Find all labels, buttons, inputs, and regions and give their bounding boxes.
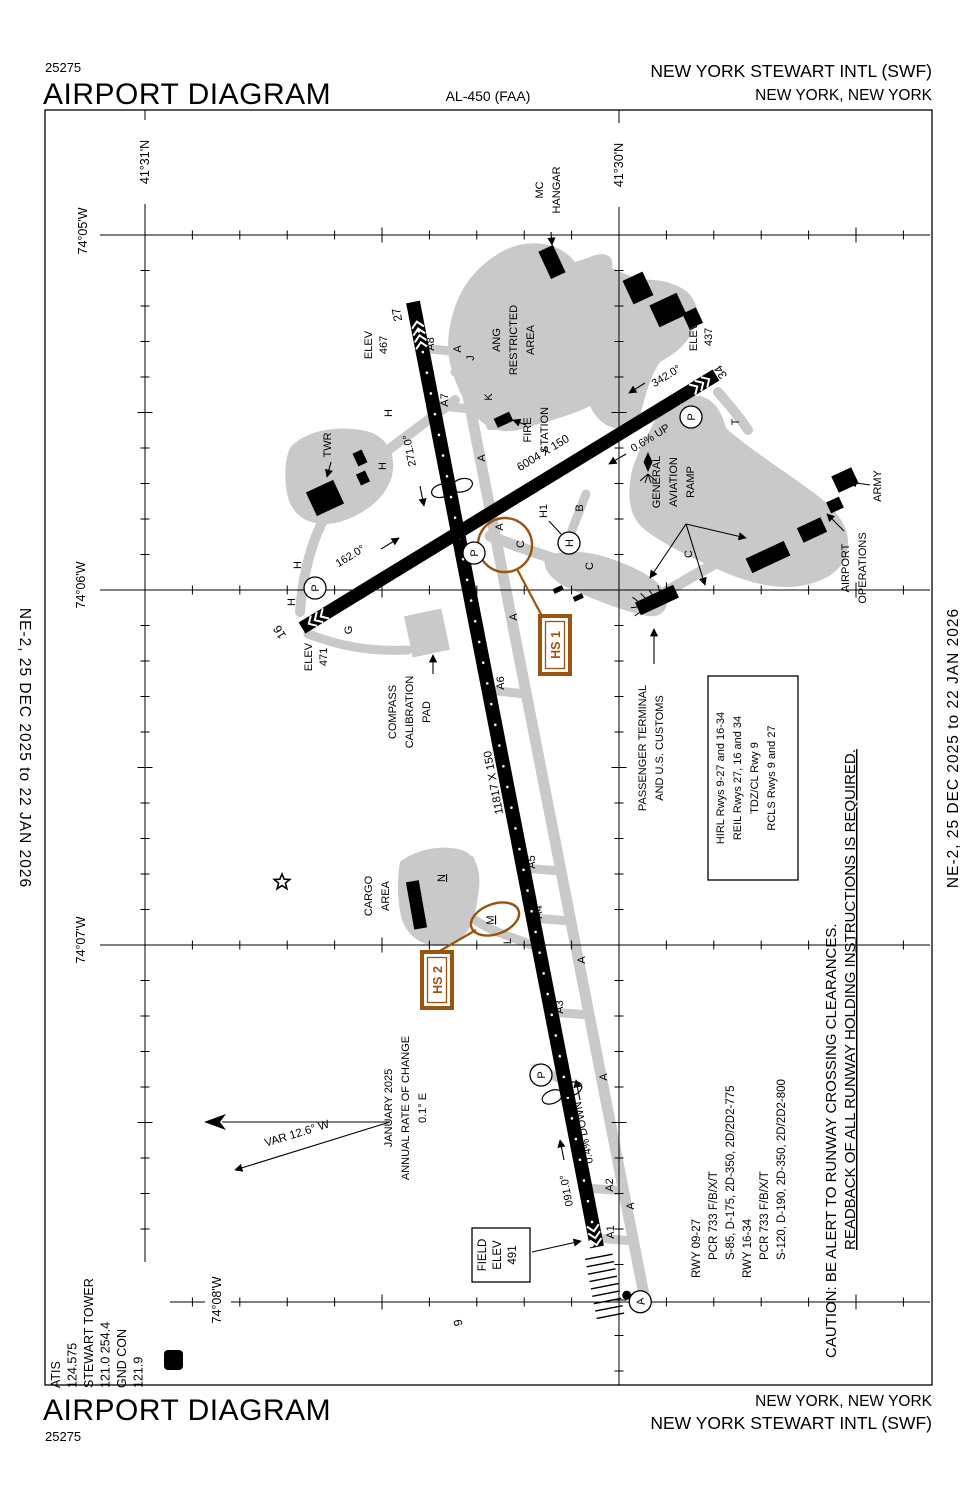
taxiway-label-h1: H1 bbox=[538, 504, 550, 518]
runway-16-heading: 162.0° bbox=[334, 543, 368, 570]
svg-text:STATION: STATION bbox=[539, 407, 551, 453]
taxiway-label-h: H bbox=[377, 462, 389, 470]
effective-dates-left: NE-2, 25 DEC 2025 to 22 JAN 2026 bbox=[16, 608, 33, 888]
hotspot-1-label: HS 1 bbox=[549, 631, 563, 659]
svg-text:READBACK OF ALL RUNWAY HOLDING: READBACK OF ALL RUNWAY HOLDING INSTRUCTI… bbox=[842, 749, 859, 1250]
taxiway-label-a: A bbox=[508, 613, 520, 621]
hold-position-marking bbox=[573, 593, 584, 602]
svg-text:AVIATION: AVIATION bbox=[668, 457, 680, 507]
taxiway-label-a5: A5 bbox=[526, 855, 538, 868]
taxiway-label-b: B bbox=[574, 504, 586, 511]
effective-dates-right: NE-2, 25 DEC 2025 to 22 JAN 2026 bbox=[945, 608, 962, 888]
svg-text:ELEV: ELEV bbox=[688, 322, 700, 351]
svg-text:COMPASS: COMPASS bbox=[387, 685, 399, 739]
svg-text:471: 471 bbox=[318, 648, 330, 666]
svg-text:P: P bbox=[469, 549, 481, 556]
field-elev-position-dot bbox=[588, 1241, 594, 1247]
svg-text:ELEV: ELEV bbox=[363, 330, 375, 359]
taxiway-label-g: G bbox=[343, 626, 355, 635]
compass-calibration-pad-label: COMPASS CALIBRATION PAD bbox=[387, 676, 433, 749]
runway-lighting-box: HIRL Rwys 9-27 and 16-34 REIL Rwys 27, 1… bbox=[708, 676, 798, 880]
lat-41-31-label: 41°31'N bbox=[138, 140, 152, 184]
svg-text:121.9: 121.9 bbox=[132, 1357, 146, 1388]
svg-text:STEWART TOWER: STEWART TOWER bbox=[82, 1278, 96, 1388]
taxiway-label-a6: A6 bbox=[495, 676, 507, 689]
taxiway-label-a: A bbox=[576, 956, 588, 964]
army-label: ARMY bbox=[872, 469, 884, 501]
svg-text:RESTRICTED: RESTRICTED bbox=[508, 305, 520, 375]
atis-d-symbol: D bbox=[164, 1350, 183, 1370]
svg-text:P: P bbox=[686, 413, 698, 420]
tower-apron bbox=[285, 429, 393, 524]
army-building bbox=[831, 467, 859, 493]
tower-label: TWR bbox=[322, 432, 334, 457]
al-number: AL-450 (FAA) bbox=[446, 88, 531, 104]
svg-text:CARGO: CARGO bbox=[363, 875, 375, 916]
magnetic-variation-arrows bbox=[204, 1114, 390, 1170]
comm-frequencies: ATIS 124.575 STEWART TOWER 121.0 254.4 G… bbox=[49, 1278, 146, 1388]
caution-note: CAUTION: BE ALERT TO RUNWAY CROSSING CLE… bbox=[823, 749, 859, 1358]
lon-74-06-label: 74°06'W bbox=[74, 561, 88, 608]
taxiway-label-h: H bbox=[286, 598, 298, 606]
taxiway-label-c: C bbox=[515, 540, 527, 548]
svg-text:S-120, D-190, 2D-350, 2D/2D2-8: S-120, D-190, 2D-350, 2D/2D2-800 bbox=[776, 1079, 788, 1260]
svg-text:P: P bbox=[310, 584, 322, 591]
taxiway-label-m: M bbox=[485, 915, 497, 924]
svg-text:PCR 733 F/B/X/T: PCR 733 F/B/X/T bbox=[759, 1171, 771, 1260]
svg-text:491: 491 bbox=[507, 1245, 519, 1264]
passenger-terminal-label: PASSENGER TERMINAL AND U.S. CUSTOMS bbox=[637, 685, 666, 811]
svg-text:437: 437 bbox=[703, 328, 715, 346]
taxiway-p-circle: P bbox=[680, 406, 702, 428]
svg-text:AREA: AREA bbox=[525, 324, 537, 355]
lon-74-05-label: 74°05'W bbox=[76, 207, 90, 254]
svg-text:H: H bbox=[564, 539, 576, 547]
taxiway-p-circle: P bbox=[304, 577, 326, 599]
field-elevation-box: FIELD ELEV 491 bbox=[472, 1228, 530, 1282]
page-title-top: AIRPORT DIAGRAM bbox=[43, 78, 331, 111]
taxiway-label-k: K bbox=[483, 393, 495, 401]
taxiway-label-h: H bbox=[292, 561, 304, 569]
runway-16-number: 16 bbox=[270, 622, 289, 641]
svg-text:TDZ/CL Rwy 9: TDZ/CL Rwy 9 bbox=[749, 742, 761, 814]
elev-471-label: ELEV 471 bbox=[303, 642, 330, 671]
airport-city-bottom: NEW YORK, NEW YORK bbox=[755, 1393, 933, 1410]
obstruction-star-icon bbox=[274, 874, 290, 889]
runway-9-heading: 091.0° bbox=[558, 1174, 576, 1208]
svg-text:RWY 09-27: RWY 09-27 bbox=[691, 1219, 703, 1278]
taxiway-label-a: A bbox=[476, 454, 488, 462]
svg-text:RWY 16-34: RWY 16-34 bbox=[742, 1218, 754, 1278]
airport-city-top: NEW YORK, NEW YORK bbox=[755, 87, 933, 104]
svg-text:ELEV: ELEV bbox=[303, 642, 315, 671]
runway-9-number: 9 bbox=[451, 1318, 466, 1328]
taxiway-p-circle: P bbox=[463, 542, 485, 564]
svg-text:ATIS: ATIS bbox=[49, 1361, 63, 1388]
svg-text:REIL Rwys 27, 16 and 34: REIL Rwys 27, 16 and 34 bbox=[732, 716, 744, 840]
taxiway-label-a: A bbox=[494, 523, 506, 531]
taxiway-label-a1: A1 bbox=[605, 1225, 617, 1238]
airport-name-top: NEW YORK STEWART INTL (SWF) bbox=[650, 61, 932, 81]
taxiway-label-h: H bbox=[383, 409, 395, 417]
hotspot-2-label: HS 2 bbox=[431, 966, 445, 994]
runway-data-block: RWY 09-27 PCR 733 F/B/X/T S-85, D-175, 2… bbox=[691, 1079, 788, 1278]
svg-text:CAUTION: BE ALERT TO RUNWAY CR: CAUTION: BE ALERT TO RUNWAY CROSSING CLE… bbox=[823, 923, 840, 1358]
taxiway-label-c: C bbox=[584, 562, 596, 570]
svg-text:AND U.S. CUSTOMS: AND U.S. CUSTOMS bbox=[654, 695, 666, 801]
taxiway-label-c: C bbox=[683, 550, 695, 558]
taxiway-label-j: J bbox=[465, 355, 477, 361]
svg-text:S-85, D-175, 2D-350, 2D/2D2-77: S-85, D-175, 2D-350, 2D/2D2-775 bbox=[725, 1085, 737, 1260]
approach-light-ladder bbox=[585, 1254, 624, 1318]
hold-position-marking bbox=[553, 585, 564, 594]
svg-text:HIRL Rwys 9-27 and 16-34: HIRL Rwys 9-27 and 16-34 bbox=[715, 712, 727, 844]
variation-label: VAR 12.6° W bbox=[263, 1119, 331, 1150]
svg-text:124.575: 124.575 bbox=[66, 1343, 80, 1388]
annual-rate-of-change-label: JANUARY 2025 ANNUAL RATE OF CHANGE 0.1° … bbox=[383, 1036, 429, 1180]
svg-text:FIRE: FIRE bbox=[522, 417, 534, 442]
taxiway-p-circle: P bbox=[530, 1064, 552, 1086]
svg-text:MC: MC bbox=[534, 181, 546, 198]
taxiway-label-a: A bbox=[598, 1073, 610, 1081]
svg-text:0.1° E: 0.1° E bbox=[417, 1093, 429, 1123]
svg-text:HANGAR: HANGAR bbox=[551, 166, 563, 213]
svg-text:PASSENGER TERMINAL: PASSENGER TERMINAL bbox=[637, 685, 649, 811]
svg-text:467: 467 bbox=[378, 336, 390, 354]
svg-text:AIRPORT: AIRPORT bbox=[840, 543, 852, 592]
chart-number-top: 25275 bbox=[45, 60, 81, 75]
taxiway-label-a4: A4 bbox=[533, 905, 545, 918]
cargo-area-label: CARGO AREA bbox=[363, 875, 392, 916]
runway-27-heading: 271.0° bbox=[401, 434, 419, 468]
svg-text:GENERAL: GENERAL bbox=[651, 456, 663, 509]
svg-text:AREA: AREA bbox=[380, 880, 392, 911]
lon-74-08-label: 74°08'W bbox=[210, 1276, 224, 1323]
chart-number-bottom: 25275 bbox=[45, 1429, 81, 1444]
taxiway-label-a: A bbox=[452, 345, 464, 353]
taxiway-label-a3: A3 bbox=[554, 1000, 566, 1013]
lon-74-07-label: 74°07'W bbox=[74, 916, 88, 963]
svg-text:CALIBRATION: CALIBRATION bbox=[404, 676, 416, 749]
svg-text:P: P bbox=[536, 1071, 548, 1078]
taxiway-label-a8: A8 bbox=[425, 337, 437, 350]
taxiway-label-a2: A2 bbox=[604, 1178, 616, 1191]
svg-text:FIELD: FIELD bbox=[477, 1239, 489, 1272]
taxiway-label-a7: A7 bbox=[439, 393, 451, 406]
svg-text:OPERATIONS: OPERATIONS bbox=[857, 532, 869, 603]
svg-text:121.0 254.4: 121.0 254.4 bbox=[99, 1322, 113, 1388]
svg-text:ANG: ANG bbox=[491, 328, 503, 352]
svg-text:PCR 733 F/B/X/T: PCR 733 F/B/X/T bbox=[708, 1171, 720, 1260]
elev-467-label: ELEV 467 bbox=[363, 330, 390, 359]
lat-41-30-label: 41°30'N bbox=[612, 143, 626, 187]
taxiway-label-l: L bbox=[502, 938, 514, 944]
svg-text:RAMP: RAMP bbox=[685, 466, 697, 498]
svg-text:D: D bbox=[166, 1355, 181, 1364]
mc-hangar-label: MC HANGAR bbox=[534, 166, 563, 213]
taxiway-label-n: N bbox=[436, 874, 448, 882]
elev-437-label: ELEV 437 bbox=[688, 322, 715, 351]
runway-27-number: 27 bbox=[389, 307, 405, 323]
taxiway-label-a: A bbox=[625, 1202, 637, 1210]
taxiway-label-t: T bbox=[730, 418, 742, 425]
page-title-bottom: AIRPORT DIAGRAM bbox=[43, 1394, 331, 1427]
svg-text:ELEV: ELEV bbox=[492, 1240, 504, 1270]
svg-text:GND CON: GND CON bbox=[115, 1329, 129, 1388]
airport-name-bottom: NEW YORK STEWART INTL (SWF) bbox=[650, 1413, 932, 1433]
svg-text:JANUARY 2025: JANUARY 2025 bbox=[383, 1069, 395, 1147]
svg-text:RCLS Rwys 9 and 27: RCLS Rwys 9 and 27 bbox=[766, 725, 778, 830]
svg-text:ANNUAL RATE OF CHANGE: ANNUAL RATE OF CHANGE bbox=[400, 1036, 412, 1180]
svg-text:PAD: PAD bbox=[421, 701, 433, 723]
airport-diagram-page: A bbox=[0, 0, 978, 1500]
